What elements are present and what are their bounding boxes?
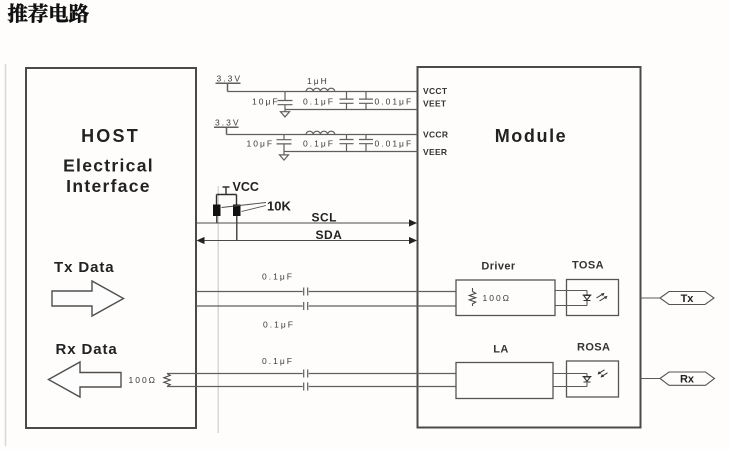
svg-text:VCC: VCC: [233, 180, 259, 194]
svg-text:10μF: 10μF: [247, 138, 275, 148]
svg-text:Tx Data: Tx Data: [54, 259, 115, 276]
svg-text:VCCR: VCCR: [423, 130, 448, 140]
svg-text:3.3V: 3.3V: [217, 73, 243, 83]
svg-text:ROSA: ROSA: [577, 342, 610, 354]
svg-text:100Ω: 100Ω: [483, 293, 512, 303]
svg-text:0.1μF: 0.1μF: [303, 97, 335, 107]
svg-text:0.1μF: 0.1μF: [303, 138, 335, 148]
svg-text:LA: LA: [493, 344, 508, 356]
svg-text:VEET: VEET: [423, 99, 447, 109]
svg-text:Tx: Tx: [681, 293, 695, 305]
svg-text:HOST: HOST: [81, 126, 140, 146]
svg-text:3.3V: 3.3V: [215, 118, 241, 128]
svg-text:10K: 10K: [267, 199, 291, 214]
svg-text:1μH: 1μH: [307, 76, 329, 86]
svg-text:100Ω: 100Ω: [129, 375, 158, 385]
svg-text:Electrical: Electrical: [63, 156, 154, 176]
svg-text:Interface: Interface: [66, 176, 151, 196]
svg-text:TOSA: TOSA: [572, 260, 604, 272]
svg-text:0.01μF: 0.01μF: [375, 138, 414, 148]
svg-text:SDA: SDA: [316, 228, 343, 242]
svg-text:0.1μF: 0.1μF: [262, 356, 294, 366]
svg-text:Module: Module: [495, 126, 568, 146]
svg-text:SCL: SCL: [312, 211, 338, 225]
svg-text:Driver: Driver: [481, 261, 516, 273]
svg-text:0.1μF: 0.1μF: [263, 320, 295, 330]
svg-text:VEER: VEER: [423, 147, 447, 157]
svg-text:0.1μF: 0.1μF: [262, 272, 294, 282]
svg-text:Rx Data: Rx Data: [56, 341, 118, 358]
svg-text:Rx: Rx: [680, 374, 695, 386]
svg-text:VCCT: VCCT: [423, 86, 448, 96]
svg-text:0.01μF: 0.01μF: [375, 97, 414, 107]
svg-text:10μF: 10μF: [252, 97, 280, 107]
